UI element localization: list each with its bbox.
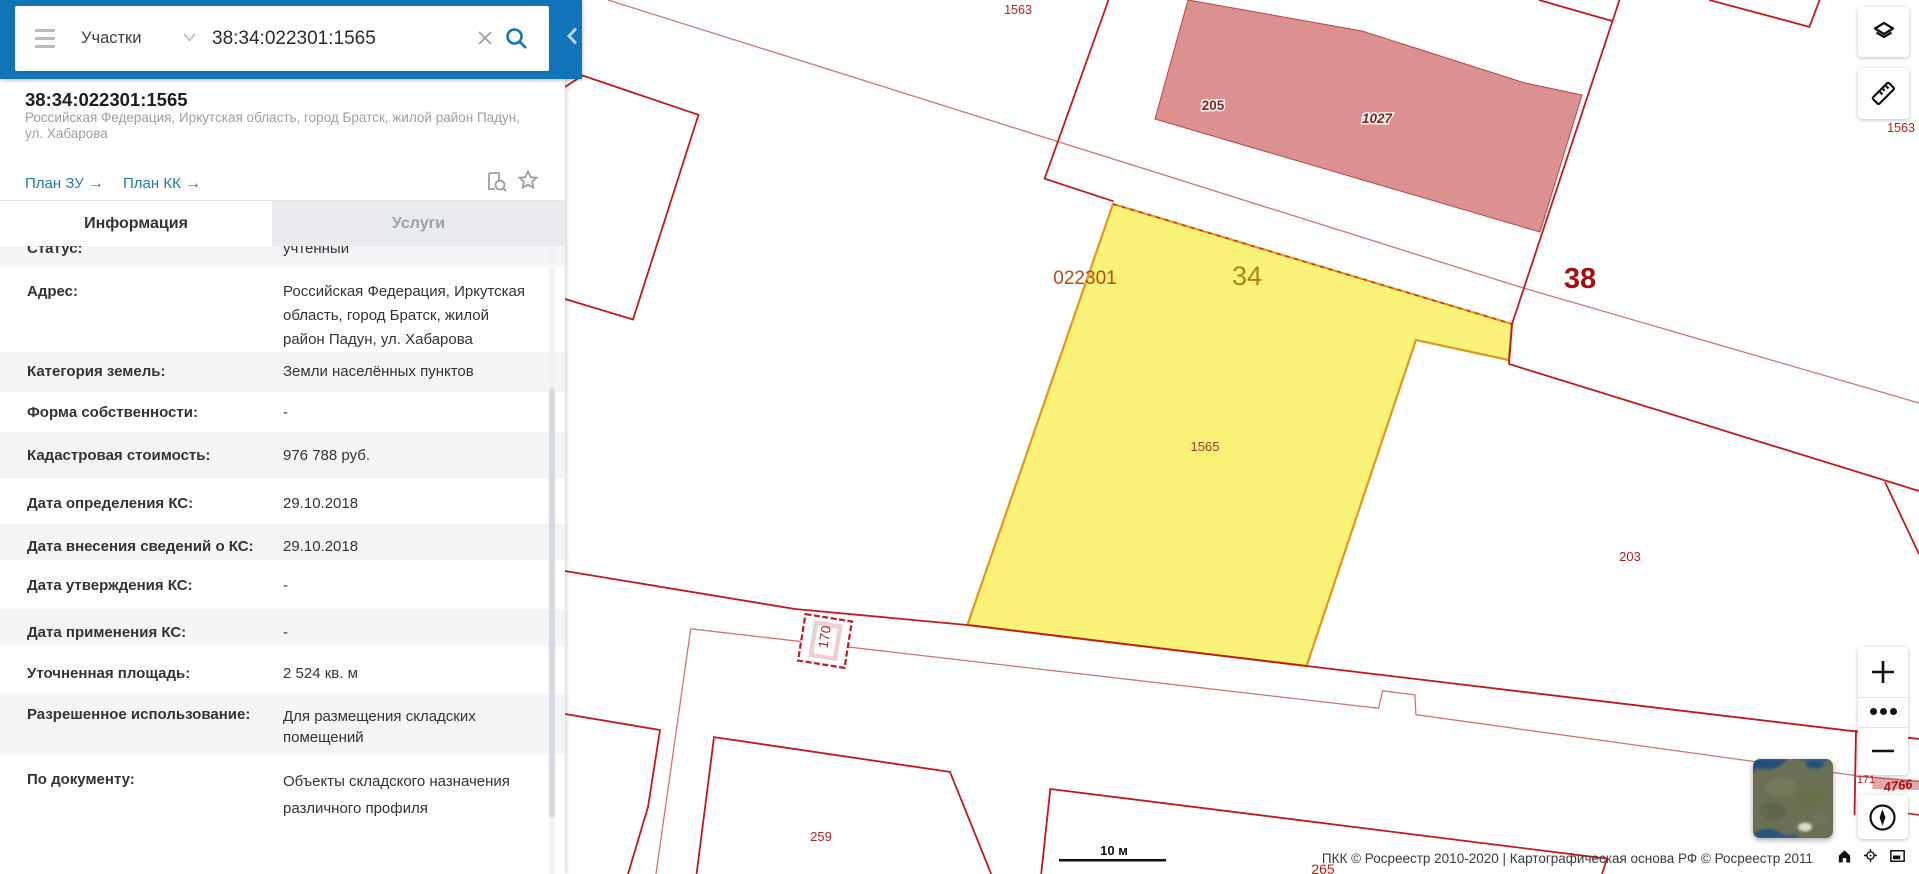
svg-text:1563: 1563 [1887, 121, 1915, 135]
svg-text:205: 205 [1202, 98, 1225, 113]
svg-text:259: 259 [810, 829, 832, 844]
svg-text:1027: 1027 [1362, 111, 1394, 126]
svg-text:34: 34 [1232, 261, 1262, 291]
svg-text:022301: 022301 [1053, 268, 1116, 289]
svg-text:ПКК © Росреестр 2010-2020 | Ка: ПКК © Росреестр 2010-2020 | Картографиче… [1322, 851, 1813, 866]
svg-text:38: 38 [1564, 263, 1596, 295]
svg-text:203: 203 [1619, 549, 1641, 564]
svg-text:171: 171 [1857, 774, 1875, 786]
svg-text:10 м: 10 м [1100, 843, 1128, 858]
svg-text:1563: 1563 [1004, 3, 1032, 17]
svg-text:4766: 4766 [1882, 776, 1914, 795]
svg-text:1565: 1565 [1191, 439, 1220, 454]
